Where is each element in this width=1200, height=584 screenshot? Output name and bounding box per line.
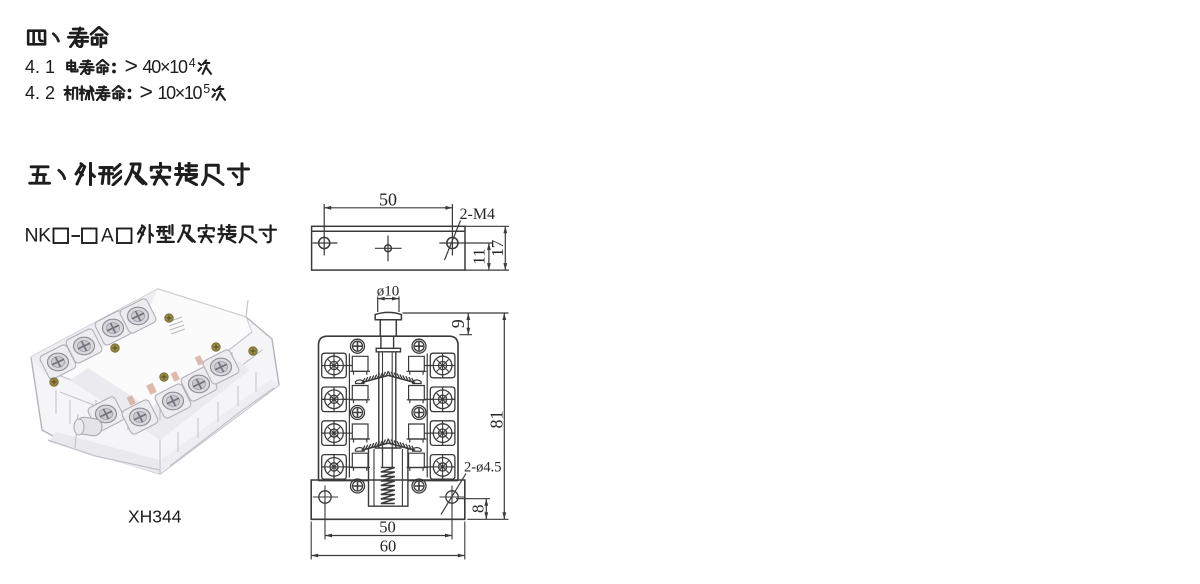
svg-text:40×10: 40×10 (143, 57, 189, 77)
svg-text:2-ø4.5: 2-ø4.5 (464, 460, 501, 476)
svg-text:60: 60 (380, 537, 397, 556)
svg-text:50: 50 (379, 189, 397, 209)
svg-text:4. 2: 4. 2 (25, 83, 55, 103)
svg-text:4. 1: 4. 1 (25, 57, 55, 77)
svg-text:2-M4: 2-M4 (460, 206, 496, 223)
svg-text:11: 11 (470, 248, 489, 264)
svg-text:>: > (125, 53, 138, 79)
svg-text:9: 9 (448, 319, 468, 328)
svg-text:XH344: XH344 (128, 507, 182, 527)
svg-text:50: 50 (379, 518, 396, 537)
svg-text:81: 81 (486, 411, 506, 429)
svg-text:NK: NK (25, 225, 52, 247)
svg-text:5: 5 (203, 82, 210, 96)
svg-text:10×10: 10×10 (158, 83, 203, 103)
svg-text:4: 4 (189, 56, 196, 70)
svg-text:8: 8 (469, 504, 488, 513)
svg-text:A: A (101, 226, 114, 247)
svg-text:17: 17 (488, 239, 507, 257)
svg-text:ø10: ø10 (377, 284, 400, 300)
svg-text:>: > (140, 79, 153, 105)
